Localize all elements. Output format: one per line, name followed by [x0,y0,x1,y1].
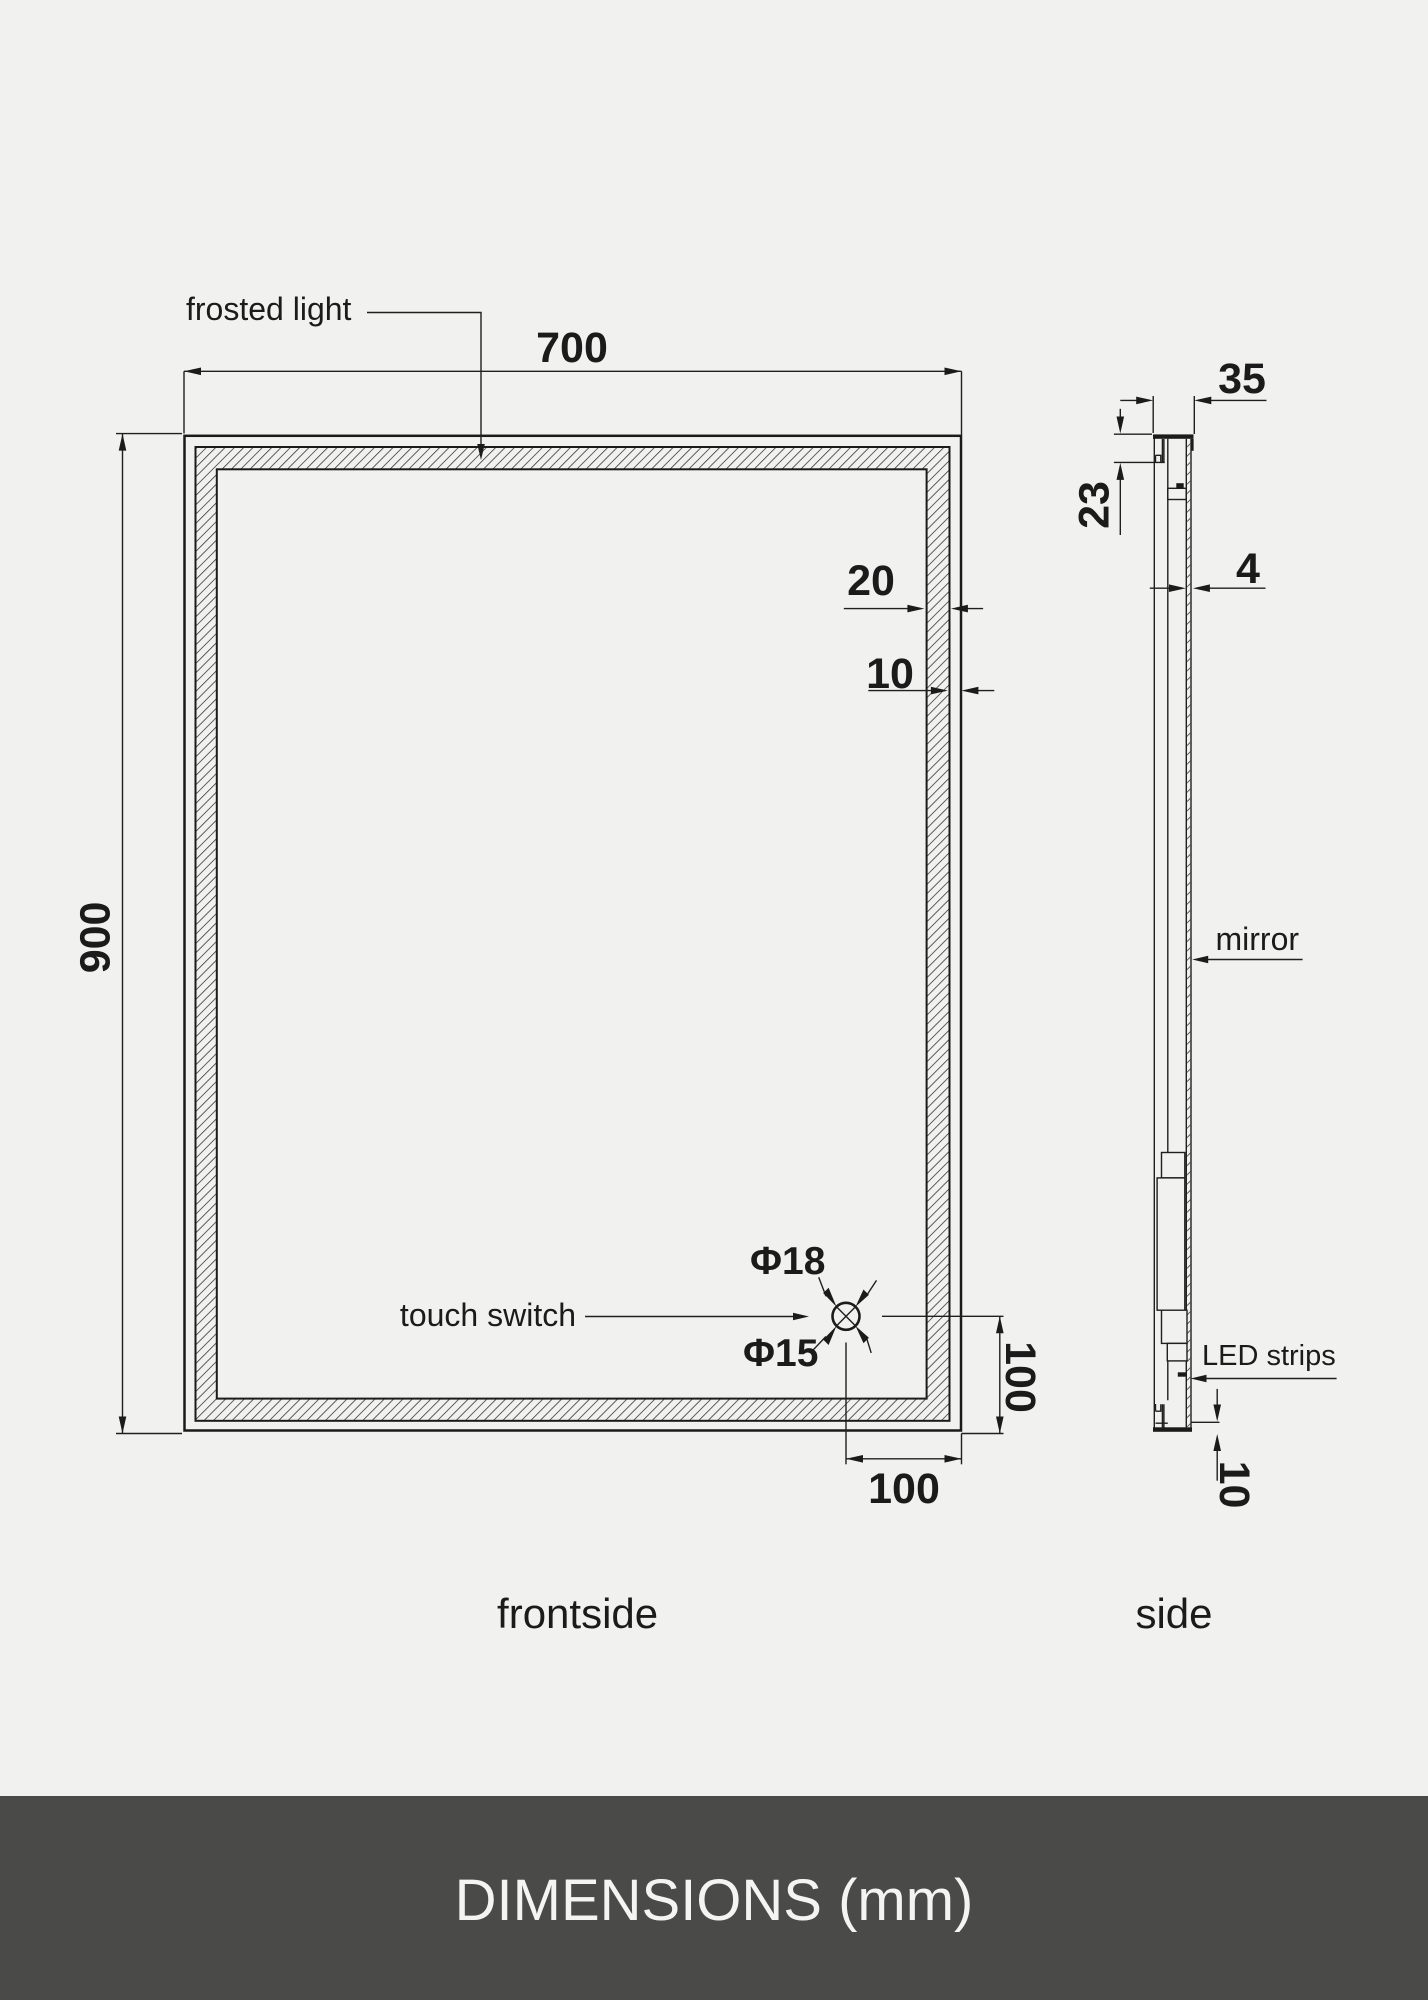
svg-text:Φ18: Φ18 [750,1240,825,1283]
svg-text:4: 4 [1236,545,1260,593]
svg-text:700: 700 [536,324,608,372]
svg-text:LED strips: LED strips [1202,1340,1336,1372]
svg-text:900: 900 [72,902,120,974]
svg-text:100: 100 [996,1341,1044,1413]
svg-text:frosted light: frosted light [186,291,352,327]
svg-text:side: side [1135,1590,1212,1637]
svg-text:DIMENSIONS (mm): DIMENSIONS (mm) [455,1868,974,1933]
svg-text:20: 20 [847,557,895,605]
svg-text:35: 35 [1218,355,1266,403]
svg-text:Φ15: Φ15 [743,1332,818,1375]
svg-text:touch switch: touch switch [400,1297,576,1333]
svg-text:mirror: mirror [1216,921,1300,957]
svg-text:23: 23 [1071,481,1119,529]
svg-text:10: 10 [1210,1461,1258,1509]
svg-text:frontside: frontside [497,1590,658,1637]
svg-text:100: 100 [868,1465,940,1513]
